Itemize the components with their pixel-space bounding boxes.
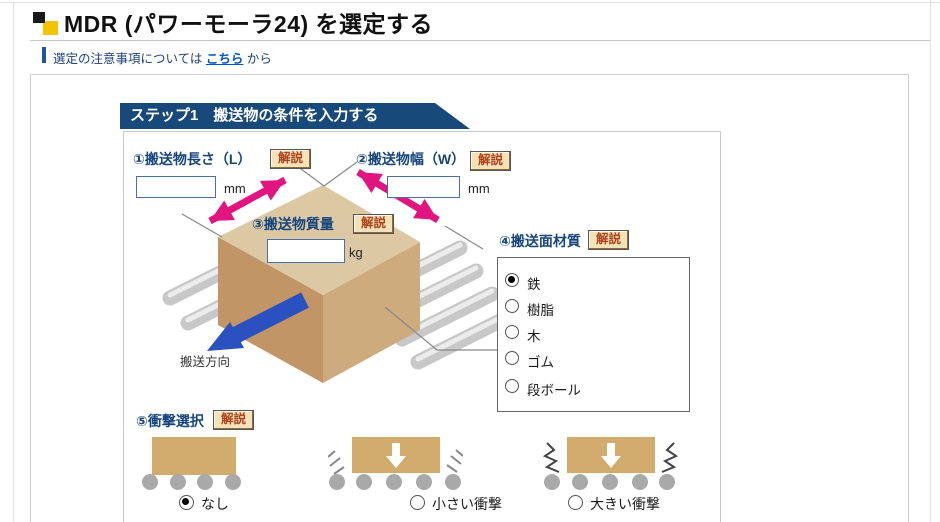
carton-icon [152,437,236,475]
impact-label: ⑤衝撃選択 [136,411,204,431]
material-option-label[interactable]: 段ボール [527,379,581,399]
impact-radio-small[interactable] [410,495,425,510]
impact-none-illustration [138,432,248,492]
note-accent-bar [42,47,46,63]
length-help-button[interactable]: 解説 [270,149,311,169]
material-label: ④搬送面材質 [499,231,581,251]
length-label: ①搬送物長さ（L） [133,149,251,169]
impact-small-illustration [328,430,463,492]
roller-dots [544,474,675,490]
material-option-label[interactable]: 鉄 [527,273,541,293]
width-input[interactable] [387,176,460,198]
mass-input[interactable] [267,239,345,263]
material-radio-tetsu[interactable] [505,273,519,287]
material-options-box [497,257,690,412]
material-option-label[interactable]: 木 [527,325,541,345]
impact-large-illustration [543,430,678,492]
material-radio-danboru[interactable] [505,379,519,393]
page-left-border [13,2,14,522]
title-black-square-icon [33,12,45,23]
width-unit: mm [468,181,490,196]
title-divider [30,40,930,41]
length-input[interactable] [136,176,216,198]
page-right-border [930,0,931,522]
mass-label: ③搬送物質量 [252,214,334,234]
step1-banner: ステップ1 搬送物の条件を入力する [120,103,470,129]
material-option-label[interactable]: ゴム [527,351,554,371]
material-radio-gomu[interactable] [505,351,519,365]
impact-radio-large[interactable] [568,495,583,510]
roller-dots [142,474,241,490]
material-radio-jushi[interactable] [505,299,519,313]
mass-unit: kg [349,245,363,260]
material-option-label[interactable]: 樹脂 [527,299,554,319]
material-help-button[interactable]: 解説 [588,230,629,250]
page-title: MDR (パワーモーラ24) を選定する [64,5,433,39]
material-radio-ki[interactable] [505,325,519,339]
page-top-border [0,2,940,3]
note-prefix: 選定の注意事項については [53,52,206,66]
direction-label: 搬送方向 [180,354,230,369]
impact-option-label[interactable]: なし [201,494,229,514]
mdr-selection-page: MDR (パワーモーラ24) を選定する 選定の注意事項については こちら から… [0,0,940,522]
width-help-button[interactable]: 解説 [470,151,511,171]
note-suffix: から [243,52,271,66]
length-unit: mm [224,181,246,196]
width-label: ②搬送物幅（W） [356,149,465,169]
impact-option-label[interactable]: 小さい衝撃 [432,494,502,514]
impact-option-label[interactable]: 大きい衝撃 [590,494,660,514]
kochira-link[interactable]: こちら [206,52,244,66]
impact-radio-none[interactable] [179,495,194,510]
mass-help-button[interactable]: 解説 [353,214,394,234]
impact-help-button[interactable]: 解説 [213,410,254,430]
selection-note: 選定の注意事項については こちら から [53,48,272,67]
roller-dots [329,474,461,490]
title-yellow-square-icon [43,21,58,35]
